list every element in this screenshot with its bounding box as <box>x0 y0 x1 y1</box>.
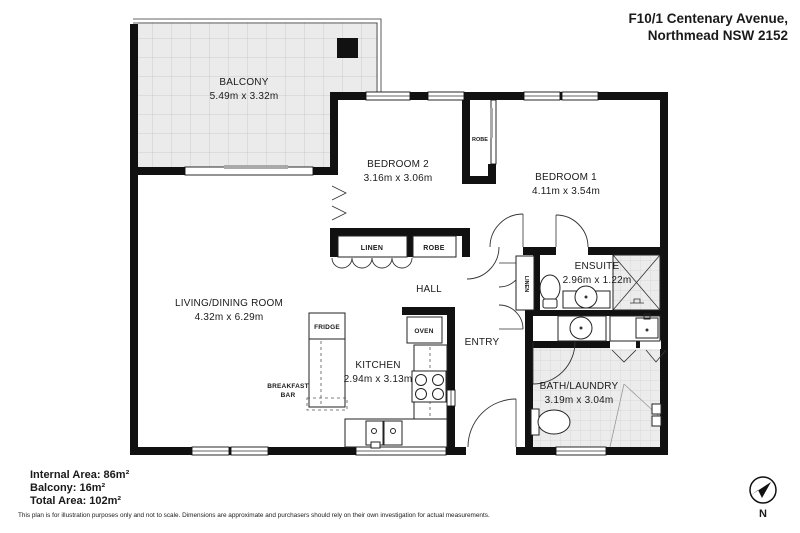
bath-laundry-dims: 3.19m x 3.04m <box>545 395 614 406</box>
bedroom1-window-b <box>562 92 598 100</box>
bedroom2-window <box>366 92 410 100</box>
entry-label: ENTRY <box>465 337 500 348</box>
floor-plan-drawing: BALCONY 5.49m x 3.32m BEDROOM 2 3.16m x … <box>0 0 800 533</box>
ensuite-dims: 2.96m x 1.22m <box>563 275 632 286</box>
fridge-label: FRIDGE <box>314 324 340 331</box>
balcony-area-text: Balcony: 16m² <box>30 482 106 494</box>
bath-window <box>556 447 606 455</box>
balcony-label: BALCONY <box>219 77 268 88</box>
bedroom2-dims: 3.16m x 3.06m <box>364 173 433 184</box>
breakfast-bar-label-line1: BREAKFAST <box>267 383 309 390</box>
floor-plan-page: BALCONY 5.49m x 3.32m BEDROOM 2 3.16m x … <box>0 0 800 533</box>
bedroom1-label: BEDROOM 1 <box>535 172 597 183</box>
bedroom-robe-sliding-door <box>490 100 496 164</box>
kitchen-label: KITCHEN <box>355 360 400 371</box>
address-line1: F10/1 Centenary Avenue, <box>628 11 788 26</box>
bath-laundry-label: BATH/LAUNDRY <box>540 381 619 392</box>
kitchen-passthrough-window <box>447 390 455 406</box>
hall-label: HALL <box>416 284 442 295</box>
hall-linen-label: LINEN <box>361 245 384 252</box>
living-window-a <box>192 447 229 455</box>
internal-area-text: Internal Area: 86m² <box>30 469 130 481</box>
kitchen-dims: 2.94m x 3.13m <box>344 374 413 385</box>
disclaimer-text: This plan is for illustration purposes o… <box>18 512 490 519</box>
living-window-b <box>231 447 268 455</box>
robe-window <box>428 92 464 100</box>
balcony-dims: 5.49m x 3.32m <box>210 91 279 102</box>
bedroom-robe-label: ROBE <box>472 137 488 143</box>
total-area-text: Total Area: 102m² <box>30 495 121 507</box>
compass-north-icon: N <box>750 477 776 520</box>
kitchen-window <box>356 447 446 455</box>
compass-north-label: N <box>759 508 767 520</box>
living-dining-dims: 4.32m x 6.29m <box>195 312 264 323</box>
hall-robe-label: ROBE <box>423 245 444 252</box>
living-dining-label: LIVING/DINING ROOM <box>175 298 283 309</box>
ensuite-label: ENSUITE <box>575 261 620 272</box>
breakfast-bar-label-line2: BAR <box>281 392 296 399</box>
bedroom1-dims: 4.11m x 3.54m <box>532 186 600 197</box>
oven-label: OVEN <box>414 328 433 335</box>
entry-linen-label: LINEN <box>523 276 529 293</box>
bedroom2-label: BEDROOM 2 <box>367 159 429 170</box>
bedroom1-window-a <box>524 92 560 100</box>
address-line2: Northmead NSW 2152 <box>648 28 788 43</box>
